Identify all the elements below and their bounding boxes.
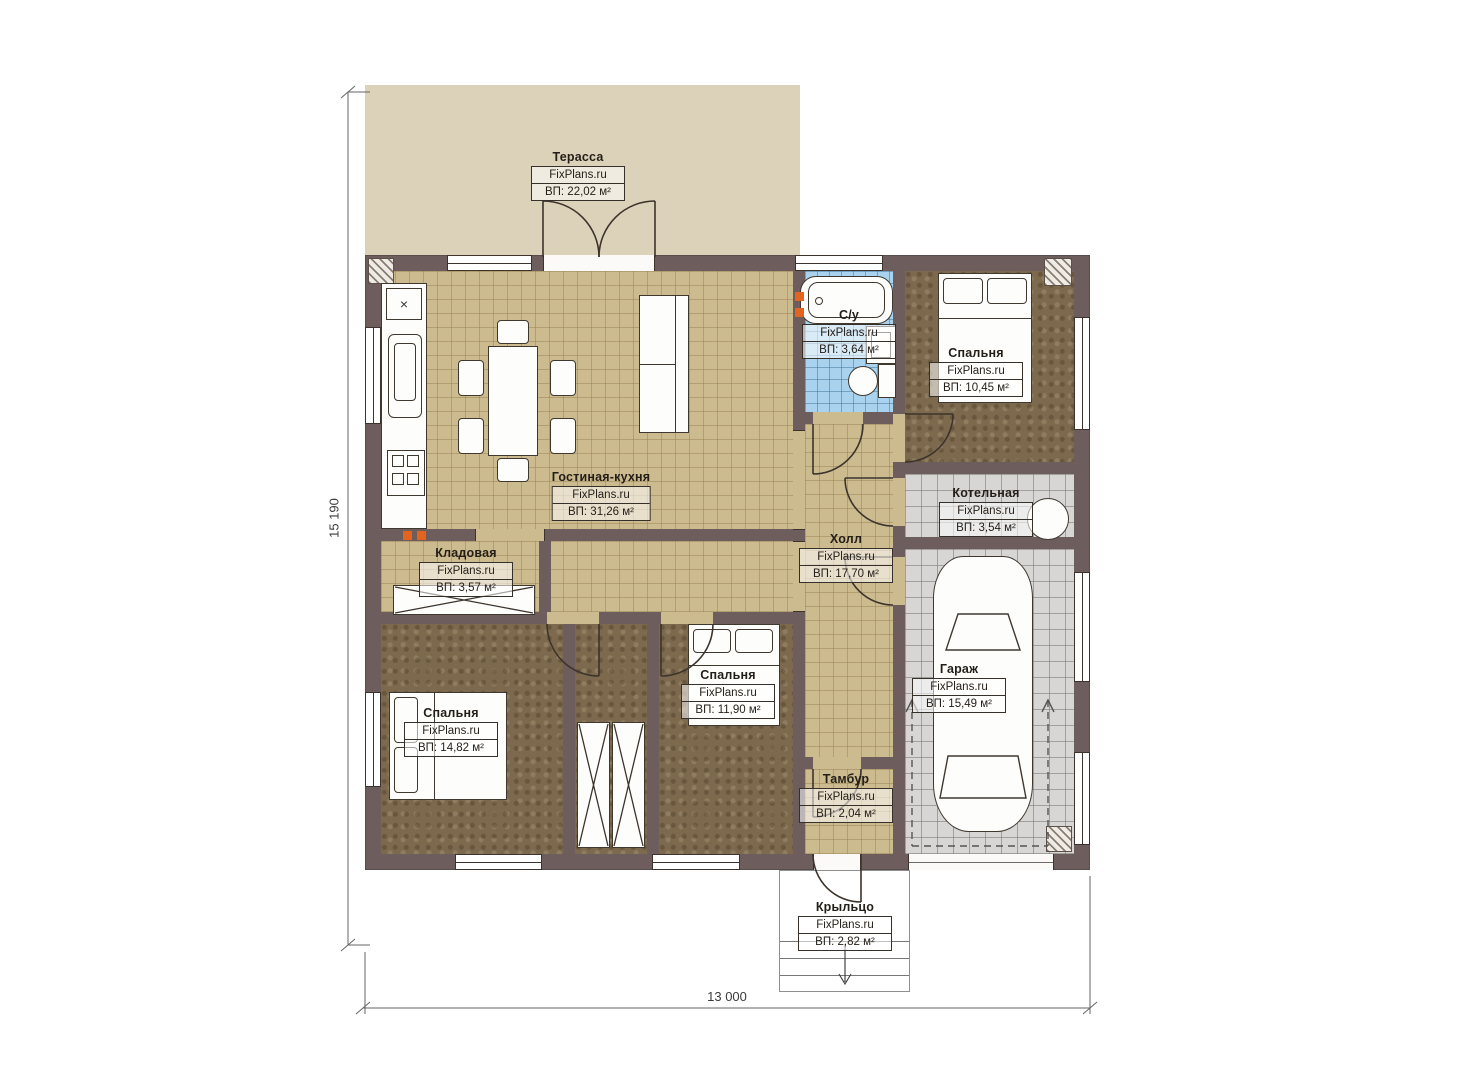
burner-icon <box>392 455 404 467</box>
room-info-box: FixPlans.ru ВП: 31,26 м² <box>552 486 651 521</box>
room-info-box: FixPlans.ru ВП: 17,70 м² <box>799 548 893 583</box>
room-area: ВП: 2,82 м² <box>799 933 891 950</box>
room-info-box: FixPlans.ru ВП: 14,82 м² <box>404 722 498 757</box>
room-area: ВП: 14,82 м² <box>405 739 497 756</box>
room-label-tambour: Тамбур FixPlans.ru ВП: 2,04 м² <box>799 772 893 823</box>
door-opening-bedroom-bl <box>547 612 599 624</box>
floor-hall <box>805 424 893 757</box>
room-name: Холл <box>799 532 893 546</box>
blanket-line <box>938 318 1032 319</box>
room-area: ВП: 15,49 м² <box>913 695 1005 712</box>
site-watermark: FixPlans.ru <box>532 167 624 183</box>
room-label-bedroom-bottom-middle: Спальня FixPlans.ru ВП: 11,90 м² <box>681 668 775 719</box>
boiler-unit <box>1027 498 1069 540</box>
site-watermark: FixPlans.ru <box>799 917 891 933</box>
room-name: Спальня <box>404 706 498 720</box>
wall <box>863 412 893 424</box>
room-name: Котельная <box>939 486 1033 500</box>
room-area: ВП: 17,70 м² <box>800 565 892 582</box>
window <box>652 854 740 870</box>
sink-basin <box>394 343 416 401</box>
pillow <box>693 629 731 653</box>
garage-gate-opening <box>908 854 1054 870</box>
toilet-tank <box>878 364 896 398</box>
door-opening-tambour <box>813 757 861 769</box>
room-label-hall: Холл FixPlans.ru ВП: 17,70 м² <box>799 532 893 583</box>
chair <box>458 360 484 396</box>
room-name: Гостиная-кухня <box>552 470 651 484</box>
room-info-box: FixPlans.ru ВП: 10,45 м² <box>929 362 1023 397</box>
door-opening-boiler <box>893 478 905 526</box>
site-watermark: FixPlans.ru <box>940 503 1032 519</box>
room-label-storage: Кладовая FixPlans.ru ВП: 3,57 м² <box>419 546 513 597</box>
chair <box>550 360 576 396</box>
room-name: Терасса <box>531 150 625 164</box>
wall <box>893 462 905 478</box>
kitchen-sink <box>388 334 422 418</box>
toilet-bowl <box>848 366 878 396</box>
room-label-bathroom: С/у FixPlans.ru ВП: 3,64 м² <box>802 308 896 359</box>
burner-icon <box>407 473 419 485</box>
room-label-garage: Гараж FixPlans.ru ВП: 15,49 м² <box>912 662 1006 713</box>
room-area: ВП: 11,90 м² <box>682 701 774 718</box>
room-info-box: FixPlans.ru ВП: 2,04 м² <box>799 788 893 823</box>
window <box>365 692 381 787</box>
chair <box>458 418 484 454</box>
room-info-box: FixPlans.ru ВП: 3,54 м² <box>939 502 1033 537</box>
room-name: Кладовая <box>419 546 513 560</box>
room-info-box: FixPlans.ru ВП: 15,49 м² <box>912 678 1006 713</box>
room-area: ВП: 3,57 м² <box>420 579 512 596</box>
terrace-door-opening <box>543 255 655 271</box>
room-area: ВП: 3,64 м² <box>803 341 895 358</box>
room-name: Крыльцо <box>798 900 892 914</box>
wall <box>539 541 551 612</box>
door-opening-garage <box>893 557 905 605</box>
burner-icon <box>407 455 419 467</box>
room-area: ВП: 2,04 м² <box>800 805 892 822</box>
wall <box>893 605 905 854</box>
room-name: Спальня <box>929 346 1023 360</box>
site-watermark: FixPlans.ru <box>553 487 650 503</box>
room-name: Гараж <box>912 662 1006 676</box>
radiator-icon <box>403 531 412 540</box>
entry-door-opening <box>813 854 861 870</box>
sofa-cushion-line <box>640 364 676 365</box>
window <box>365 327 381 424</box>
porch-step <box>780 975 909 976</box>
room-info-box: FixPlans.ru ВП: 22,02 м² <box>531 166 625 201</box>
room-area: ВП: 10,45 м² <box>930 379 1022 396</box>
wall <box>713 612 793 624</box>
sofa <box>639 295 689 433</box>
window <box>447 255 532 271</box>
cross-glyph: × <box>400 296 408 312</box>
vent-shaft <box>1044 258 1072 286</box>
room-area: ВП: 22,02 м² <box>532 183 624 200</box>
radiator-icon <box>417 531 426 540</box>
stove <box>387 450 425 496</box>
site-watermark: FixPlans.ru <box>405 723 497 739</box>
wardrobe <box>577 722 610 848</box>
floor-plan-canvas: × <box>0 0 1473 1080</box>
window <box>1074 752 1090 845</box>
site-watermark: FixPlans.ru <box>800 789 892 805</box>
burner-icon <box>392 473 404 485</box>
room-label-terrace: Терасса FixPlans.ru ВП: 22,02 м² <box>531 150 625 201</box>
radiator-icon <box>795 292 804 301</box>
wall <box>861 757 893 769</box>
opening-living-hall <box>793 430 805 530</box>
wall <box>599 612 661 624</box>
window <box>795 255 883 271</box>
wardrobe <box>612 722 645 848</box>
room-name: Спальня <box>681 668 775 682</box>
room-label-bedroom-bottom-left: Спальня FixPlans.ru ВП: 14,82 м² <box>404 706 498 757</box>
pillow <box>987 278 1027 304</box>
site-watermark: FixPlans.ru <box>800 549 892 565</box>
pillow <box>943 278 983 304</box>
dining-table <box>488 346 538 456</box>
wall <box>893 526 905 557</box>
sofa-back <box>675 296 688 432</box>
wall <box>563 624 575 854</box>
wall <box>545 529 793 541</box>
door-opening-bathroom <box>813 412 863 424</box>
sink-unit-icon: × <box>386 288 422 320</box>
window <box>1074 317 1090 430</box>
site-watermark: FixPlans.ru <box>930 363 1022 379</box>
room-area: ВП: 3,54 м² <box>940 519 1032 536</box>
wall <box>805 757 813 769</box>
drain-icon <box>815 297 823 305</box>
room-label-boiler: Котельная FixPlans.ru ВП: 3,54 м² <box>939 486 1033 537</box>
site-watermark: FixPlans.ru <box>420 563 512 579</box>
window <box>1074 572 1090 682</box>
wall <box>905 462 1074 474</box>
room-info-box: FixPlans.ru ВП: 3,57 м² <box>419 562 513 597</box>
room-name: Тамбур <box>799 772 893 786</box>
site-watermark: FixPlans.ru <box>913 679 1005 695</box>
room-label-bedroom-top-right: Спальня FixPlans.ru ВП: 10,45 м² <box>929 346 1023 397</box>
vent-shaft <box>1046 826 1072 852</box>
dimension-label-width: 13 000 <box>707 989 747 1004</box>
room-label-living-kitchen: Гостиная-кухня FixPlans.ru ВП: 31,26 м² <box>552 470 651 521</box>
room-label-porch: Крыльцо FixPlans.ru ВП: 2,82 м² <box>798 900 892 951</box>
door-opening-bedroom-tr <box>893 414 905 462</box>
pillow <box>735 629 773 653</box>
site-watermark: FixPlans.ru <box>682 685 774 701</box>
chair <box>550 418 576 454</box>
chair <box>497 458 529 482</box>
vent-shaft <box>368 258 394 284</box>
room-info-box: FixPlans.ru ВП: 11,90 м² <box>681 684 775 719</box>
site-watermark: FixPlans.ru <box>803 325 895 341</box>
wall <box>647 624 659 854</box>
room-info-box: FixPlans.ru ВП: 2,82 м² <box>798 916 892 951</box>
room-info-box: FixPlans.ru ВП: 3,64 м² <box>802 324 896 359</box>
room-name: С/у <box>802 308 896 322</box>
wall <box>805 412 813 424</box>
chair <box>497 320 529 344</box>
opening-living-corridor <box>475 529 545 541</box>
window <box>455 854 542 870</box>
wall <box>381 529 475 541</box>
room-area: ВП: 31,26 м² <box>553 503 650 520</box>
porch-step <box>780 958 909 959</box>
blanket-line <box>688 665 780 666</box>
door-opening-bedroom-bm <box>661 612 713 624</box>
dimension-label-depth: 15 190 <box>327 498 342 538</box>
